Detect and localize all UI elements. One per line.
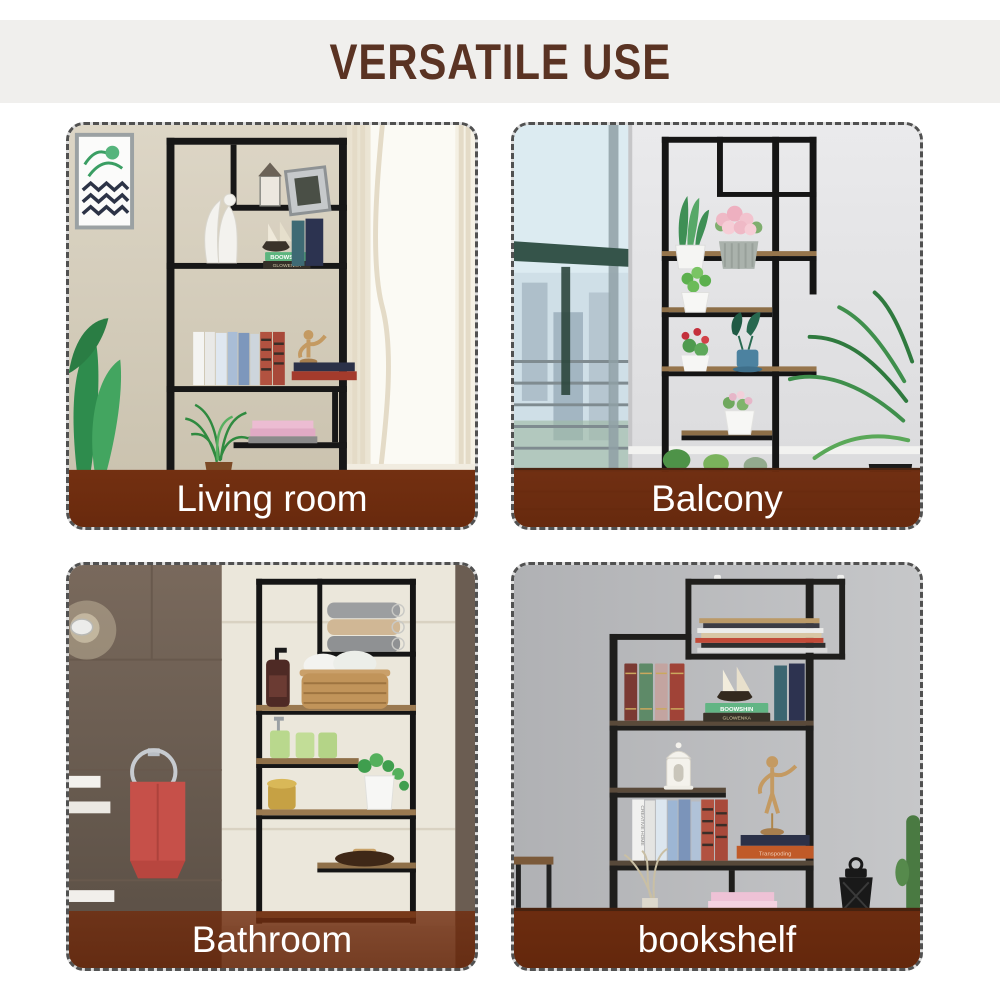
wall-strip-right: [455, 565, 475, 968]
page-title: VERSATILE USE: [329, 33, 671, 91]
label-band-living-room: Living room: [69, 470, 475, 527]
bookshelf-photo: BOOWSHIN GLOWENKA CREATIVE HOME: [514, 565, 920, 968]
books-row: [193, 332, 285, 385]
label-text: Balcony: [651, 480, 783, 517]
panel-living-room: BOOWSHIN GLOWENKA: [66, 122, 478, 530]
living-room-photo: BOOWSHIN GLOWENKA: [69, 125, 475, 527]
svg-text:GLOWENKA: GLOWENKA: [723, 716, 752, 722]
balcony-photo: [514, 125, 920, 527]
folded-towels: [327, 602, 404, 651]
svg-text:CREATIVE HOME: CREATIVE HOME: [639, 805, 645, 846]
window-curtains: [347, 125, 475, 472]
label-band-bathroom: Bathroom: [69, 911, 475, 968]
glass-railing-view: [514, 125, 628, 527]
photo-frame: [285, 167, 329, 215]
page: VERSATILE USE: [0, 0, 1000, 1000]
navy-book: [789, 664, 805, 721]
books-row: CREATIVE HOME: [632, 800, 728, 861]
label-band-bookshelf: bookshelf: [514, 911, 920, 968]
svg-text:Transpoding: Transpoding: [759, 852, 792, 858]
label-text: Bathroom: [192, 921, 352, 958]
header: VERSATILE USE: [0, 20, 1000, 103]
teal-book: [774, 666, 787, 721]
label-band-balcony: Balcony: [514, 470, 920, 527]
magazine-stack: [695, 618, 827, 652]
book-stack-horizontal: Transpoding: [737, 835, 814, 859]
panel-balcony: Balcony: [511, 122, 923, 530]
pink-flower-pot: [723, 391, 755, 434]
svg-text:BOOWSHIN: BOOWSHIN: [720, 707, 753, 713]
wall-art: [77, 135, 132, 228]
panel-bookshelf: BOOWSHIN GLOWENKA CREATIVE HOME: [511, 562, 923, 971]
label-text: Living room: [176, 480, 367, 517]
panel-bathroom: Bathroom: [66, 562, 478, 971]
label-text: bookshelf: [638, 921, 796, 958]
pink-books: [248, 421, 317, 444]
wall-corner: [628, 125, 632, 527]
bathroom-photo: [69, 565, 475, 968]
gold-jar: [267, 779, 297, 810]
